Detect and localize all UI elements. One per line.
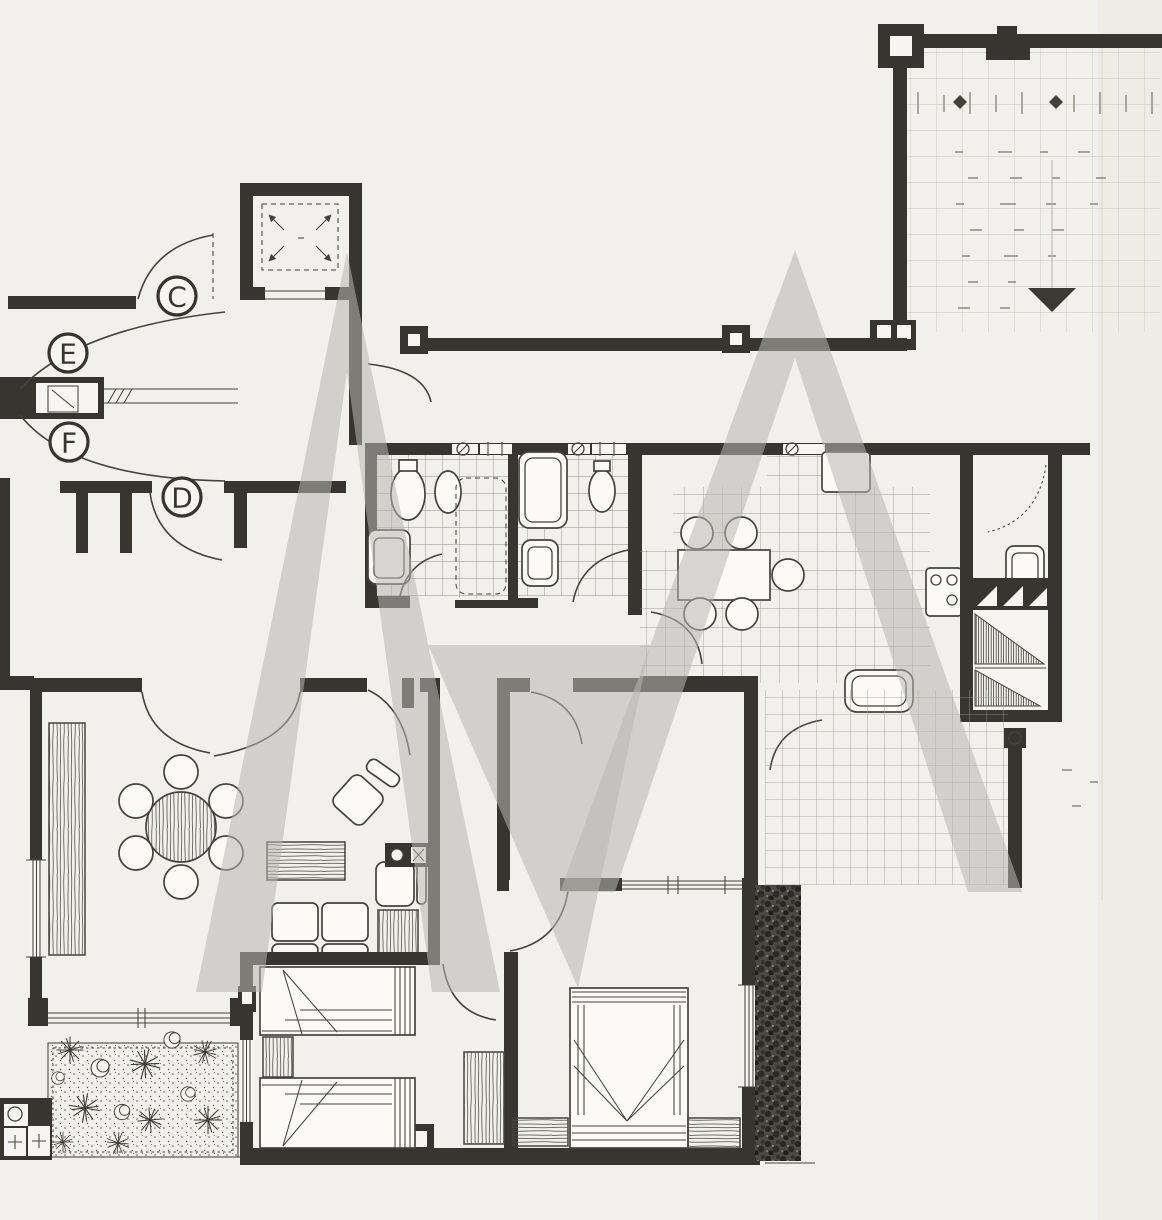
landing-wall [8,296,136,309]
door-label-d: D [163,478,201,516]
door-letter: D [171,482,193,515]
sofa-seat [272,903,318,941]
kitchen-sink [926,568,962,616]
armchair [376,862,414,906]
bathtub [519,452,567,528]
boundary-wall-top [893,34,1162,48]
single-bed [260,1078,415,1148]
bidet [435,471,461,513]
sideboard [49,723,85,955]
hedge [755,885,801,1161]
stone-icon [114,1104,129,1119]
single-bed [260,967,415,1035]
door-letter: C [167,281,187,314]
stool [772,559,804,591]
chair [119,784,153,818]
chair [119,836,153,870]
bedside-bench [513,1118,568,1146]
column [1004,728,1026,748]
door-letter: F [61,427,77,460]
stone-icon [52,1072,65,1085]
utility-corner [0,1098,52,1160]
dining-table [146,792,216,862]
stool [726,598,758,630]
outer-wall-bottom [240,1148,760,1165]
door-letter: E [59,338,77,371]
bathroom-2 [518,452,628,602]
double-bed [570,988,688,1148]
stone-icon [91,1059,109,1077]
toilet [589,470,615,512]
side-table [378,910,418,954]
door-label-e: E [49,334,87,372]
nightstand [263,1037,293,1077]
sofa-seat [322,903,368,941]
floor-plan-page: C E F D [0,0,1162,1220]
door-label-f: F [50,423,88,461]
chair [164,865,198,899]
long-wall [404,338,907,351]
boundary-wall-left [893,34,907,345]
outer-wall-left [0,478,10,688]
wardrobe [464,1052,504,1144]
bedside-bench [688,1118,740,1148]
floor-plan-canvas: C E F D [0,0,1162,1220]
stone-icon [164,1032,180,1048]
chair [164,755,198,789]
door-label-c: C [158,277,196,315]
entrance-duct [0,377,104,419]
stone-icon [181,1087,195,1101]
